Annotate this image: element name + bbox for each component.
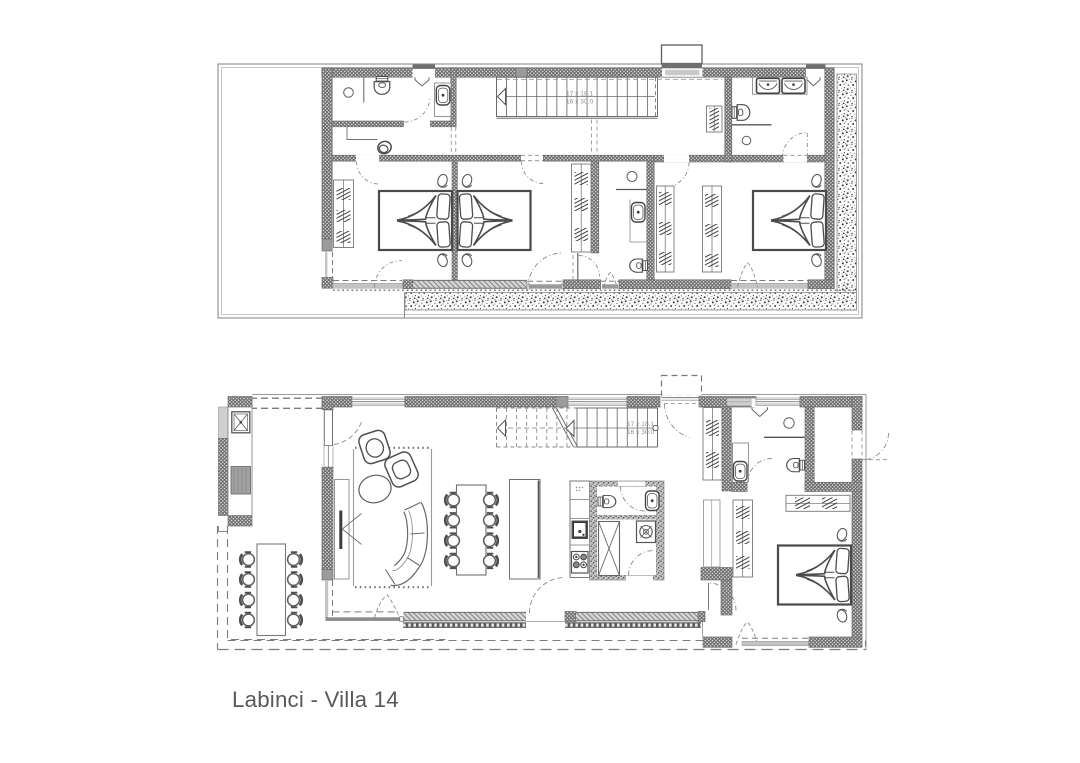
svg-text:Labinci - Villa 14: Labinci - Villa 14 (232, 687, 399, 712)
svg-text:17 x 18.1: 17 x 18.1 (627, 421, 654, 428)
svg-text:17 x 18.1: 17 x 18.1 (566, 90, 593, 97)
svg-text:16 x 30.0: 16 x 30.0 (566, 98, 593, 105)
svg-text:16 x 30.0: 16 x 30.0 (627, 429, 654, 436)
